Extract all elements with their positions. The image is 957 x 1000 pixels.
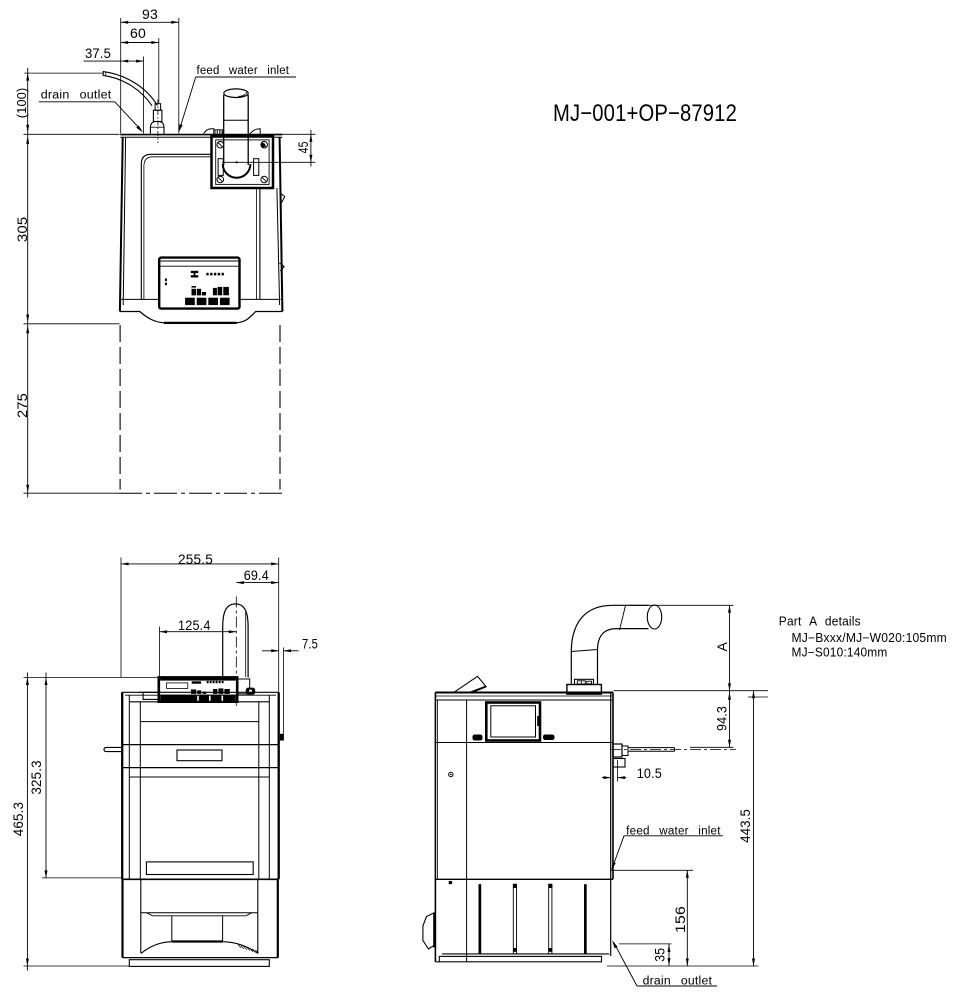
svg-text:7.5: 7.5	[302, 636, 318, 652]
svg-text:Part A details: Part A details	[779, 614, 861, 628]
svg-text:37.5: 37.5	[85, 45, 111, 61]
svg-text:MJ−Bxxx/MJ−W020:105mm: MJ−Bxxx/MJ−W020:105mm	[792, 631, 947, 645]
svg-text:465.3: 465.3	[10, 802, 26, 836]
svg-text:325.3: 325.3	[28, 760, 44, 794]
svg-text:156: 156	[672, 906, 688, 933]
svg-text:125.4: 125.4	[178, 617, 211, 633]
svg-text:94.3: 94.3	[714, 706, 730, 731]
svg-text:305: 305	[14, 217, 30, 243]
svg-text:93: 93	[142, 6, 158, 22]
svg-text:60: 60	[130, 25, 146, 41]
svg-text:255.5: 255.5	[178, 551, 213, 567]
svg-text:MJ−S010:140mm: MJ−S010:140mm	[792, 646, 888, 660]
svg-text:feed water inlet: feed water inlet	[197, 65, 290, 77]
svg-text:MJ−001+OP−87912: MJ−001+OP−87912	[553, 100, 737, 127]
svg-text:drain outlet: drain outlet	[41, 90, 112, 102]
svg-text:(100): (100)	[14, 88, 29, 119]
svg-text:45: 45	[295, 141, 311, 153]
svg-text:443.5: 443.5	[737, 809, 753, 843]
svg-text:A: A	[714, 642, 730, 652]
svg-text:10.5: 10.5	[637, 765, 662, 781]
svg-text:275: 275	[14, 393, 30, 418]
svg-text:35: 35	[652, 948, 668, 962]
svg-text:69.4: 69.4	[244, 567, 269, 583]
